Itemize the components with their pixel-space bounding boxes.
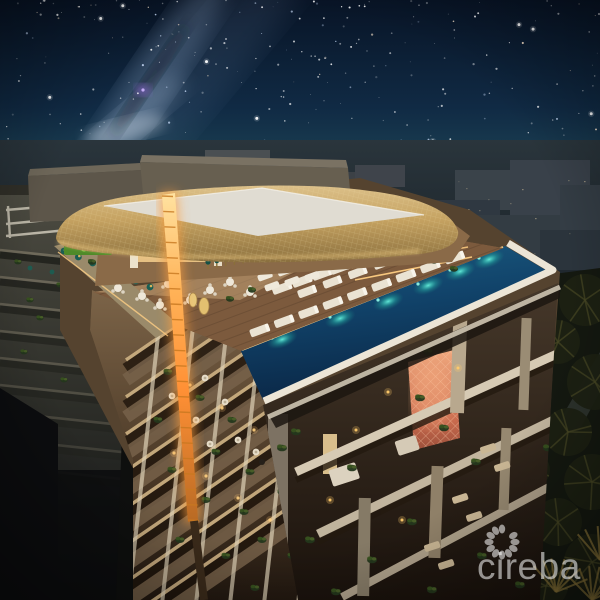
scene-canvas: cireba xyxy=(0,0,600,600)
night-rendering-image: cireba xyxy=(0,0,600,600)
vignette xyxy=(0,0,600,600)
watermark-text: cireba xyxy=(477,546,581,587)
